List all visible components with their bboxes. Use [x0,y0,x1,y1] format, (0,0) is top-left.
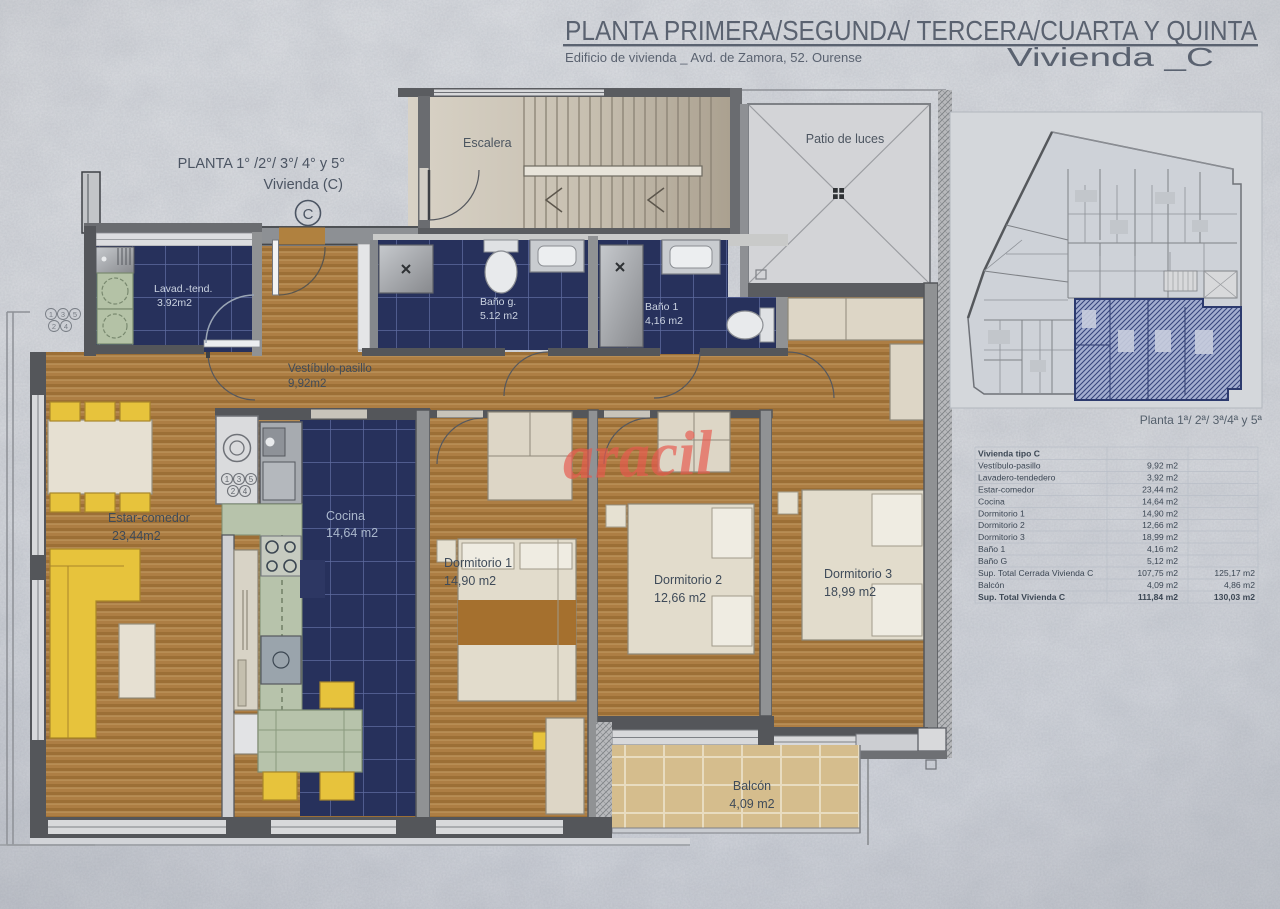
svg-text:2: 2 [52,322,56,331]
svg-text:Lavad.-tend.: Lavad.-tend. [154,283,212,295]
svg-text:1: 1 [49,310,53,319]
svg-text:23,44 m2: 23,44 m2 [1142,485,1178,495]
svg-text:PLANTA 1° /2°/ 3°/ 4° y 5°: PLANTA 1° /2°/ 3°/ 4° y 5° [178,156,345,172]
svg-text:3.92m2: 3.92m2 [157,297,192,309]
svg-text:aracil: aracil [561,417,714,492]
svg-text:Vivienda tipo C: Vivienda tipo C [978,449,1040,459]
svg-text:1: 1 [225,475,230,484]
svg-text:Estar-comedor: Estar-comedor [978,485,1034,495]
svg-text:Balcón: Balcón [978,580,1004,590]
svg-text:Balcón: Balcón [733,779,771,793]
svg-text:130,03 m2: 130,03 m2 [1214,592,1255,602]
svg-text:9,92m2: 9,92m2 [288,378,326,390]
svg-text:Baño 1: Baño 1 [978,544,1005,554]
svg-text:23,44m2: 23,44m2 [112,529,161,543]
svg-text:5,12 m2: 5,12 m2 [1147,556,1178,566]
svg-text:4,86 m2: 4,86 m2 [1224,580,1255,590]
svg-text:14,64 m2: 14,64 m2 [326,526,378,540]
svg-text:Cocina: Cocina [978,497,1005,507]
svg-text:4: 4 [243,487,248,496]
svg-text:Sup. Total Vivienda C: Sup. Total Vivienda C [978,592,1065,602]
svg-text:107,75 m2: 107,75 m2 [1137,568,1178,578]
svg-text:4,09 m2: 4,09 m2 [1147,580,1178,590]
svg-text:18,99 m2: 18,99 m2 [824,585,876,599]
svg-text:111,84 m2: 111,84 m2 [1138,592,1178,602]
svg-text:Planta 1ª/ 2ª/ 3ª/4ª y 5ª: Planta 1ª/ 2ª/ 3ª/4ª y 5ª [1140,413,1263,427]
svg-text:5: 5 [73,310,77,319]
svg-text:18,99 m2: 18,99 m2 [1142,532,1178,542]
svg-text:14,90 m2: 14,90 m2 [1142,509,1178,519]
svg-text:C: C [303,206,314,223]
svg-text:Patio de luces: Patio de luces [806,132,885,146]
svg-text:125,17 m2: 125,17 m2 [1214,568,1255,578]
svg-text:9,92 m2: 9,92 m2 [1147,461,1178,471]
svg-text:Dormitorio 1: Dormitorio 1 [978,509,1025,519]
svg-text:Baño g.: Baño g. [480,296,516,308]
svg-text:3,92 m2: 3,92 m2 [1147,473,1178,483]
svg-text:Dormitorio 1: Dormitorio 1 [444,556,512,570]
svg-text:2: 2 [231,487,236,496]
svg-text:Dormitorio 3: Dormitorio 3 [978,532,1025,542]
svg-text:Dormitorio 2: Dormitorio 2 [654,573,722,587]
svg-text:Sup. Total Cerrada Vivienda C: Sup. Total Cerrada Vivienda C [978,568,1093,578]
svg-text:Escalera: Escalera [463,136,512,150]
svg-text:14,90 m2: 14,90 m2 [444,574,496,588]
svg-text:Dormitorio 3: Dormitorio 3 [824,567,892,581]
svg-text:Edificio de vivienda _ Avd. de: Edificio de vivienda _ Avd. de Zamora, 5… [565,50,862,65]
svg-text:Vivienda (C): Vivienda (C) [263,177,343,193]
svg-text:4,16 m2: 4,16 m2 [1147,544,1178,554]
svg-text:Vestíbulo-pasillo: Vestíbulo-pasillo [978,461,1041,471]
svg-text:12,66 m2: 12,66 m2 [1142,520,1178,530]
svg-text:5.12 m2: 5.12 m2 [480,310,518,322]
svg-text:4: 4 [64,322,68,331]
svg-text:Dormitorio 2: Dormitorio 2 [978,520,1025,530]
svg-text:Baño G: Baño G [978,556,1007,566]
svg-text:Vivienda _C: Vivienda _C [1007,42,1214,71]
svg-text:Lavadero-tendedero: Lavadero-tendedero [978,473,1056,483]
svg-text:Cocina: Cocina [326,509,365,523]
svg-text:5: 5 [249,475,254,484]
svg-text:4,16 m2: 4,16 m2 [645,315,683,327]
svg-text:Estar-comedor: Estar-comedor [108,511,190,525]
svg-text:14,64 m2: 14,64 m2 [1142,497,1178,507]
svg-text:Baño 1: Baño 1 [645,301,678,313]
svg-text:Vestíbulo-pasillo: Vestíbulo-pasillo [288,363,372,375]
svg-text:3: 3 [237,475,242,484]
svg-text:12,66 m2: 12,66 m2 [654,591,706,605]
svg-text:3: 3 [61,310,65,319]
svg-text:4,09 m2: 4,09 m2 [729,797,774,811]
